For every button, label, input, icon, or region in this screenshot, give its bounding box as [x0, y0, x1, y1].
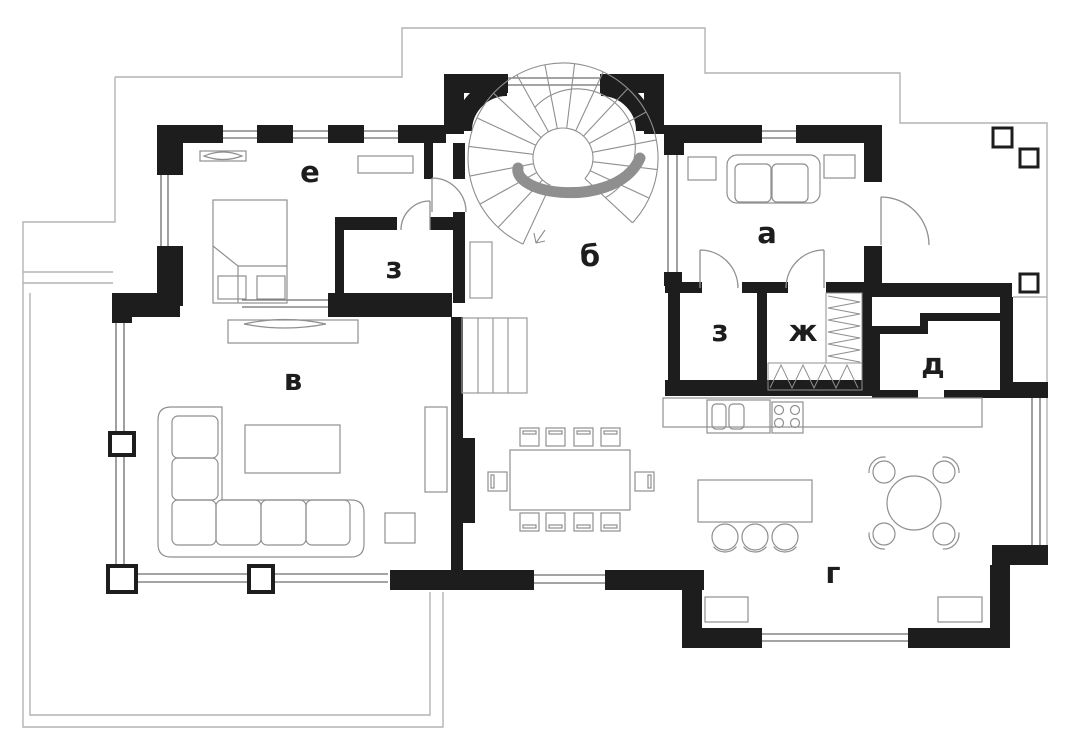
wall [665, 282, 702, 293]
wall [453, 217, 465, 303]
burner [775, 419, 784, 428]
room-a-top-window [762, 131, 796, 138]
terrace-column [1020, 149, 1038, 167]
chair [873, 523, 895, 545]
wall [990, 565, 1010, 635]
room-label-b: б [580, 239, 600, 273]
radiator [938, 597, 982, 622]
burner [791, 406, 800, 415]
burner [775, 406, 784, 415]
dining-south-window [534, 575, 605, 583]
chair-back-bar [604, 431, 617, 434]
room-label-e: е [300, 155, 320, 189]
door-corridor [432, 178, 466, 212]
sofa-cushion [216, 500, 261, 545]
columns [108, 433, 273, 592]
sofa-cushion [306, 500, 350, 545]
dining-table [510, 450, 630, 510]
bay-window-sill [244, 320, 326, 329]
wall [453, 212, 465, 222]
wall [862, 293, 872, 388]
side-table [688, 157, 716, 180]
chair-back-bar [549, 525, 562, 528]
side-table [385, 513, 415, 543]
terrace-columns [993, 128, 1038, 292]
radiator [705, 597, 748, 622]
sink-bowl [712, 404, 726, 429]
room-label-g: г [825, 556, 840, 590]
wall [682, 628, 762, 648]
kitchen-east-window [1032, 398, 1040, 545]
floor-plan-page: а б в г д е ж з з [0, 0, 1069, 743]
bar-stool [742, 524, 768, 550]
chair-back-bar [577, 525, 590, 528]
sofa-cushion [261, 500, 306, 545]
hall-partition-glazing [668, 150, 677, 272]
spiral-arrow [534, 230, 545, 243]
room-label-zh: ж [789, 314, 818, 348]
kitchen-island [698, 480, 812, 522]
stair-flight [462, 318, 527, 393]
tv-cabinet [425, 407, 447, 492]
chair-back-bar [648, 475, 651, 488]
sink-unit [707, 400, 770, 433]
door-closet-z1 [401, 201, 430, 230]
bedroom-top-windows [223, 131, 398, 138]
wall [328, 293, 452, 317]
wardrobe-cabinet [358, 156, 413, 173]
wall [864, 125, 882, 182]
terrace-column [1020, 274, 1038, 292]
sofa-cushion [172, 458, 218, 500]
wall [112, 295, 132, 323]
wall [328, 125, 364, 143]
wall [872, 326, 928, 334]
room-label-z2: з [712, 314, 729, 348]
wall [1000, 297, 1013, 384]
chair-back-bar [549, 431, 562, 434]
wall [335, 217, 344, 303]
bar-stool [772, 524, 798, 550]
chair-back-bar [523, 431, 536, 434]
chair-back-bar [523, 525, 536, 528]
chair-back [869, 457, 886, 473]
burner [791, 419, 800, 428]
wall [826, 282, 864, 293]
furniture-room-a [688, 155, 855, 203]
wall [668, 293, 680, 380]
kitchen-counter [663, 398, 982, 427]
wall [872, 390, 918, 398]
sofa-cushion [172, 500, 216, 545]
room-label-a: а [757, 216, 777, 250]
chair [933, 523, 955, 545]
left-terrace-inner [30, 293, 430, 715]
column [110, 433, 134, 455]
door-wardrobe-zh [786, 250, 824, 288]
chair-back-bar [577, 431, 590, 434]
spiral-inner-arc [533, 128, 593, 185]
wall [920, 313, 1000, 321]
furniture-dining [488, 428, 654, 531]
door-terrace [881, 197, 929, 245]
wall [335, 217, 397, 230]
chair-back [942, 457, 959, 473]
column [249, 566, 273, 592]
sink-bowl [729, 404, 744, 429]
wall [424, 143, 433, 179]
wall [390, 570, 534, 590]
bay-curve-left [463, 87, 507, 131]
furniture-kitchen [663, 398, 982, 622]
stair-treads [478, 318, 508, 393]
furniture-living-room [158, 320, 447, 558]
chair-back-bar [491, 475, 494, 488]
wall [453, 143, 465, 179]
door-closet-z2 [700, 250, 738, 288]
terrace-column [993, 128, 1012, 147]
spiral-staircase [468, 63, 658, 244]
left-terrace-outline [23, 77, 443, 727]
wall [864, 283, 1012, 297]
wall [757, 293, 767, 380]
chair-back-bar [604, 525, 617, 528]
chair-back [869, 532, 885, 549]
wall [992, 545, 1048, 565]
bar-stool [712, 524, 738, 550]
wall [398, 125, 446, 143]
wall [430, 217, 453, 230]
bed-blanket-fold [213, 246, 287, 303]
room-label-v: в [284, 363, 302, 397]
shelf-zigzag-right [828, 296, 860, 362]
wall [605, 570, 704, 590]
sofa [727, 155, 820, 203]
round-table [887, 476, 941, 530]
dresser-mirror [204, 152, 242, 160]
wall [1000, 382, 1048, 398]
walls [112, 74, 1048, 648]
wall [451, 438, 475, 523]
chair [933, 461, 955, 483]
floor-plan-drawing: а б в г д е ж з з [0, 0, 1069, 743]
wall [451, 317, 463, 438]
chair-back [943, 532, 959, 549]
wall [157, 125, 183, 175]
wall [908, 628, 1010, 648]
kitchen-south-window [762, 634, 908, 641]
bedroom-left-window [161, 175, 168, 246]
bed-pillow [218, 276, 246, 299]
coffee-table [245, 425, 340, 473]
wall [864, 246, 882, 286]
stair-rail [470, 242, 492, 298]
room-label-z1: з [386, 251, 403, 285]
sofa-cushion [772, 164, 808, 202]
bed-pillow [257, 276, 285, 299]
side-table [824, 155, 855, 178]
wall [944, 390, 1002, 398]
bed [213, 200, 287, 303]
column [108, 566, 136, 592]
porch-steps [23, 272, 113, 283]
chair [873, 461, 895, 483]
wall [664, 125, 684, 155]
sofa-cushion [172, 416, 218, 458]
wall [451, 523, 463, 570]
room-label-d: д [921, 347, 944, 381]
wall [872, 326, 880, 398]
wall [257, 125, 293, 143]
straight-stairs [462, 242, 527, 393]
wall [682, 590, 702, 630]
wall [742, 282, 788, 293]
spiral-handrail-curl [518, 158, 640, 193]
doors [401, 178, 929, 288]
sofa-cushion [735, 164, 771, 202]
